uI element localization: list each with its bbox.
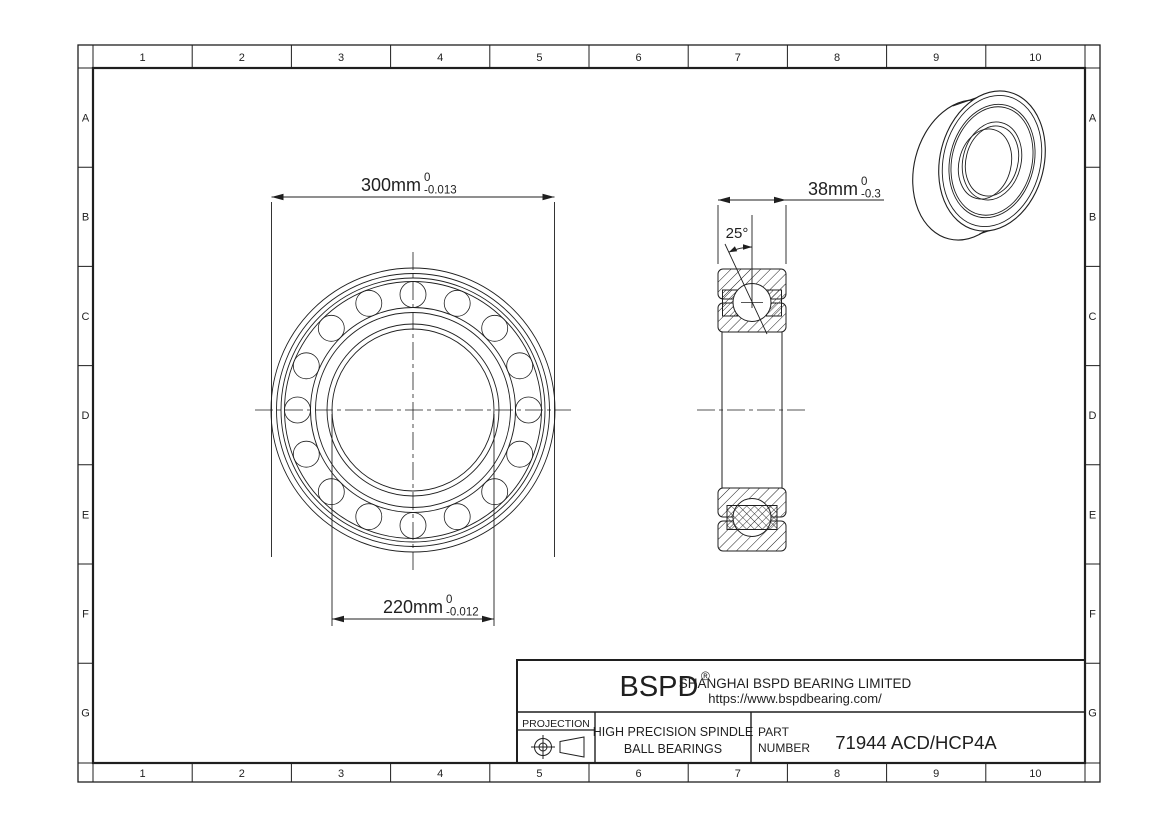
product-line1: HIGH PRECISION SPINDLE — [593, 725, 753, 739]
first-angle-projection-icon — [531, 735, 584, 759]
arrowhead-icon — [718, 197, 730, 203]
arrowhead-icon — [774, 197, 786, 203]
bore-diameter-tol-upper: 0 — [446, 594, 452, 606]
grid-ruler-right: A B C D E F G — [1088, 113, 1097, 720]
grid-col-label: 1 — [140, 52, 146, 64]
arrowhead-icon — [272, 194, 284, 200]
product-description: HIGH PRECISION SPINDLE BALL BEARINGS — [593, 725, 753, 756]
part-number-value: 71944 ACD/HCP4A — [835, 732, 997, 753]
grid-col-label: 2 — [239, 768, 245, 780]
grid-row-label: G — [1088, 708, 1097, 720]
projection-cell: PROJECTION — [522, 718, 590, 759]
grid-col-label: 5 — [536, 768, 542, 780]
grid-col-label: 10 — [1029, 52, 1041, 64]
grid-col-label: 8 — [834, 52, 840, 64]
company-name: SHANGHAI BSPD BEARING LIMITED — [679, 676, 912, 691]
bore-diameter-value: 220mm — [383, 597, 443, 617]
front-view — [255, 252, 571, 574]
isometric-view — [898, 80, 1059, 252]
drawing-canvas: 1 2 3 4 5 6 7 8 9 10 1 2 3 4 5 6 7 8 9 1… — [0, 0, 1170, 827]
grid-col-label: 4 — [437, 52, 443, 64]
grid-row-label: F — [1089, 609, 1096, 621]
grid-row-label: D — [1089, 410, 1097, 422]
company-website: https://www.bspdbearing.com/ — [708, 691, 882, 706]
product-line2: BALL BEARINGS — [624, 742, 722, 756]
grid-row-label: G — [81, 708, 90, 720]
part-number-cell: PART NUMBER 71944 ACD/HCP4A — [758, 725, 997, 755]
grid-col-label: 6 — [636, 768, 642, 780]
section-view — [697, 269, 807, 551]
grid-col-label: 10 — [1029, 768, 1041, 780]
grid-row-label: E — [82, 509, 89, 521]
grid-col-label: 8 — [834, 768, 840, 780]
grid-col-label: 7 — [735, 52, 741, 64]
grid-col-label: 7 — [735, 768, 741, 780]
grid-col-label: 5 — [536, 52, 542, 64]
cage-section-front — [727, 506, 777, 530]
grid-col-label: 4 — [437, 768, 443, 780]
grid-ruler-bottom: 1 2 3 4 5 6 7 8 9 10 — [140, 768, 1042, 780]
grid-row-label: A — [82, 113, 90, 125]
arrowhead-icon — [332, 616, 344, 622]
contact-angle-value: 25° — [726, 225, 749, 242]
engineering-drawing-page: 1 2 3 4 5 6 7 8 9 10 1 2 3 4 5 6 7 8 9 1… — [0, 0, 1170, 827]
grid-col-label: 3 — [338, 52, 344, 64]
width-tol-upper: 0 — [861, 176, 867, 188]
grid-row-label: D — [82, 410, 90, 422]
grid-row-label: C — [1089, 311, 1097, 323]
front-view-centerlines — [255, 252, 571, 574]
outer-diameter-tol-upper: 0 — [424, 172, 430, 184]
grid-col-label: 9 — [933, 768, 939, 780]
grid-ruler-top: 1 2 3 4 5 6 7 8 9 10 — [140, 52, 1042, 64]
part-number-label-line1: PART — [758, 725, 790, 739]
bore-diameter-tol-lower: -0.012 — [446, 607, 479, 619]
grid-row-label: F — [82, 609, 89, 621]
width-tol-lower: -0.3 — [861, 189, 881, 201]
grid-row-label: C — [82, 311, 90, 323]
part-number-label-line2: NUMBER — [758, 741, 810, 755]
grid-col-label: 1 — [140, 768, 146, 780]
outer-diameter-tol-lower: -0.013 — [424, 185, 457, 197]
grid-col-label: 9 — [933, 52, 939, 64]
width-value: 38mm — [808, 179, 858, 199]
projection-label: PROJECTION — [522, 718, 590, 730]
grid-col-label: 6 — [636, 52, 642, 64]
arrowhead-icon — [482, 616, 494, 622]
grid-ruler-left: A B C D E F G — [81, 113, 90, 720]
grid-row-label: B — [82, 212, 89, 224]
grid-col-label: 2 — [239, 52, 245, 64]
outer-diameter-value: 300mm — [361, 175, 421, 195]
arrowhead-icon — [729, 246, 737, 252]
grid-row-label: B — [1089, 212, 1096, 224]
arrowhead-icon — [543, 194, 555, 200]
grid-col-label: 3 — [338, 768, 344, 780]
grid-row-label: E — [1089, 509, 1096, 521]
grid-row-label: A — [1089, 113, 1097, 125]
arrowhead-icon — [743, 244, 752, 250]
